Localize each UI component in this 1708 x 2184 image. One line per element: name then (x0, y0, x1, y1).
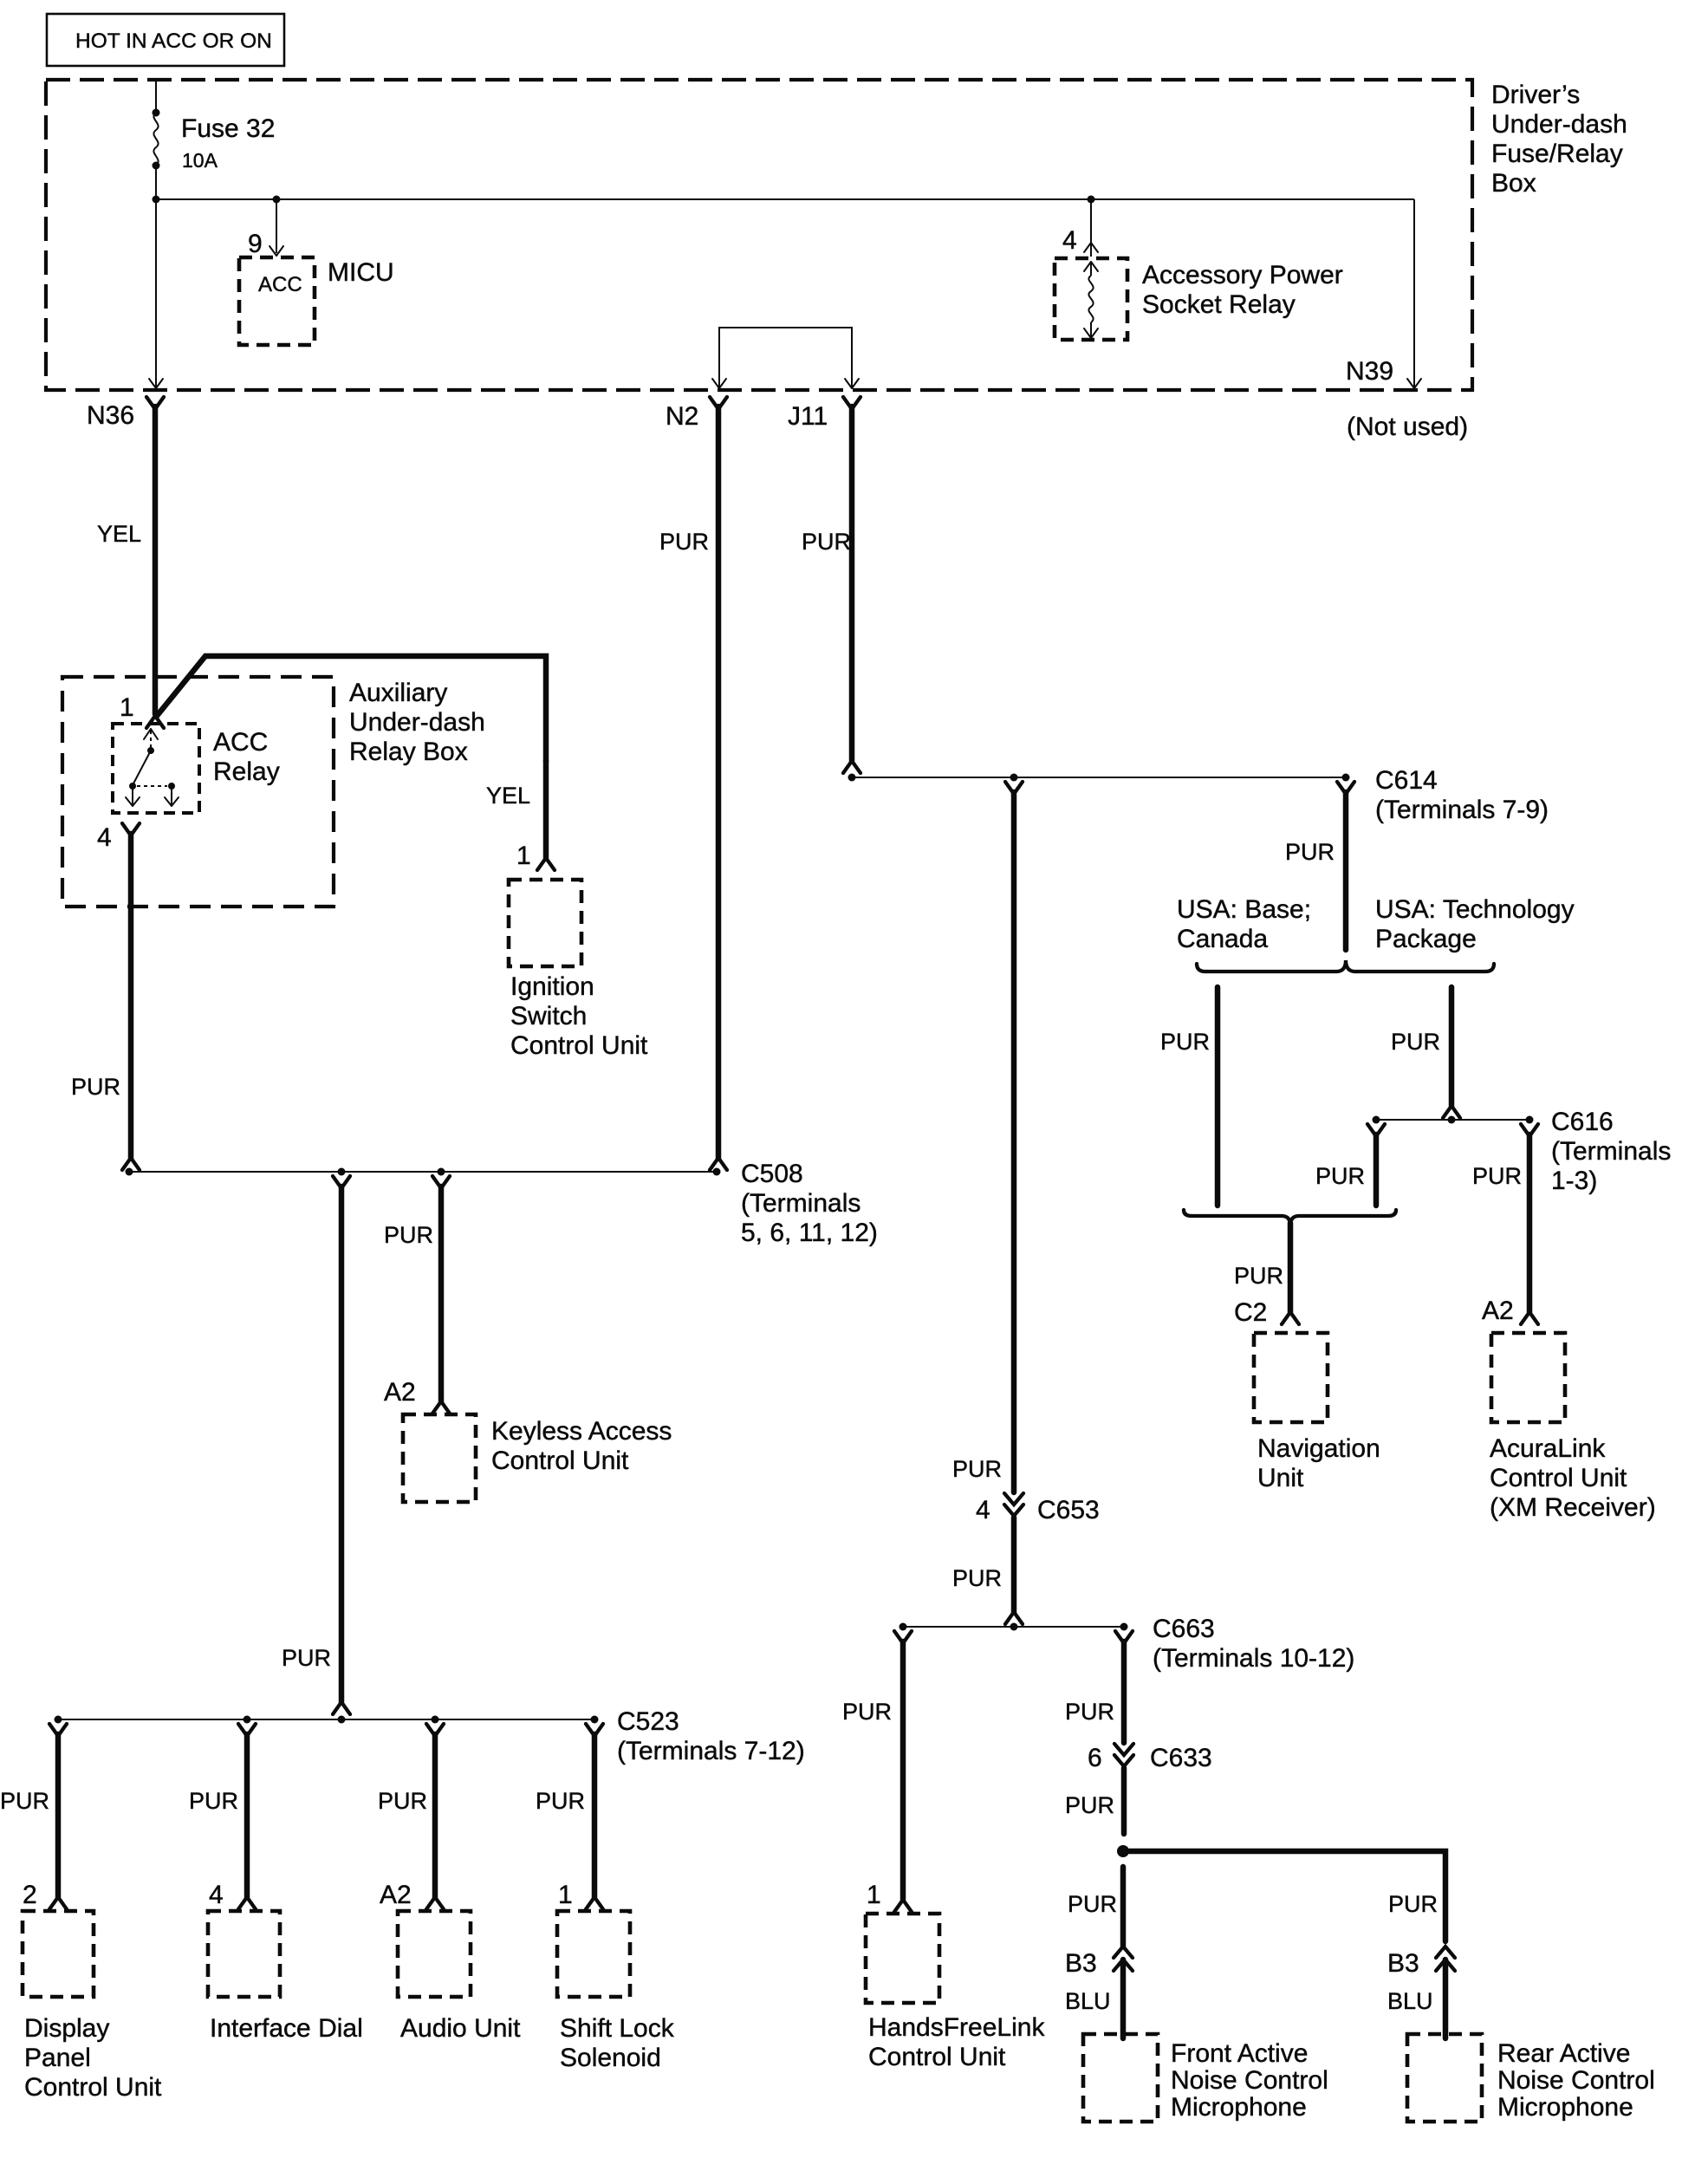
svg-text:Microphone: Microphone (1171, 2093, 1307, 2122)
svg-text:Under-dash: Under-dash (1491, 110, 1627, 139)
svg-text:Control Unit: Control Unit (868, 2043, 1006, 2071)
svg-text:PUR: PUR (1068, 1891, 1117, 1917)
svg-text:1: 1 (558, 1881, 573, 1909)
svg-text:(Terminals: (Terminals (1551, 1137, 1671, 1166)
svg-text:C633: C633 (1150, 1744, 1212, 1772)
svg-text:Ignition: Ignition (510, 972, 594, 1001)
svg-text:4: 4 (209, 1881, 224, 1909)
svg-text:PUR: PUR (189, 1788, 238, 1814)
svg-text:Control Unit: Control Unit (1490, 1464, 1627, 1492)
svg-text:10A: 10A (182, 149, 218, 172)
svg-text:USA: Technology: USA: Technology (1375, 895, 1575, 924)
svg-text:C508: C508 (741, 1160, 803, 1188)
svg-text:PUR: PUR (71, 1074, 120, 1100)
svg-text:Canada: Canada (1177, 925, 1268, 953)
svg-text:PUR: PUR (1391, 1029, 1440, 1055)
svg-text:C663: C663 (1153, 1615, 1215, 1643)
svg-text:Navigation: Navigation (1257, 1434, 1380, 1463)
svg-text:BLU: BLU (1065, 1988, 1111, 2014)
svg-text:Relay: Relay (213, 757, 280, 786)
svg-text:Audio Unit: Audio Unit (400, 2014, 521, 2043)
svg-text:HOT IN ACC OR ON: HOT IN ACC OR ON (75, 29, 272, 53)
svg-text:PUR: PUR (659, 529, 709, 555)
svg-text:Panel: Panel (24, 2044, 91, 2072)
svg-text:Accessory Power: Accessory Power (1142, 261, 1343, 289)
svg-text:(Terminals 7-9): (Terminals 7-9) (1375, 796, 1549, 824)
svg-text:BLU: BLU (1387, 1988, 1433, 2014)
svg-text:YEL: YEL (486, 783, 530, 809)
svg-text:Rear Active: Rear Active (1497, 2039, 1630, 2068)
svg-text:PUR: PUR (1160, 1029, 1210, 1055)
svg-text:9: 9 (248, 230, 263, 258)
svg-text:1: 1 (120, 693, 134, 722)
svg-text:Control Unit: Control Unit (510, 1031, 648, 1060)
svg-text:6: 6 (1088, 1744, 1102, 1772)
svg-text:PUR: PUR (1472, 1163, 1522, 1189)
svg-text:C523: C523 (617, 1707, 679, 1736)
svg-text:PUR: PUR (1065, 1792, 1114, 1818)
svg-text:AcuraLink: AcuraLink (1490, 1434, 1606, 1463)
svg-text:A2: A2 (1482, 1297, 1514, 1325)
svg-text:5, 6, 11, 12): 5, 6, 11, 12) (741, 1219, 878, 1247)
svg-text:Switch: Switch (510, 1002, 587, 1030)
svg-text:Microphone: Microphone (1497, 2093, 1633, 2122)
svg-text:N39: N39 (1346, 357, 1393, 386)
svg-text:HandsFreeLink: HandsFreeLink (868, 2013, 1045, 2042)
svg-text:PUR: PUR (1285, 839, 1335, 865)
svg-text:A2: A2 (384, 1378, 416, 1407)
svg-text:B3: B3 (1065, 1949, 1097, 1978)
svg-text:Fuse/Relay: Fuse/Relay (1491, 140, 1623, 168)
svg-text:Under-dash: Under-dash (349, 708, 485, 737)
svg-text:C616: C616 (1551, 1108, 1614, 1136)
svg-text:A2: A2 (380, 1881, 412, 1909)
svg-text:(Terminals: (Terminals (741, 1189, 860, 1218)
svg-text:Control Unit: Control Unit (491, 1446, 629, 1475)
svg-text:MICU: MICU (328, 258, 394, 287)
svg-text:1-3): 1-3) (1551, 1167, 1597, 1195)
svg-text:N36: N36 (87, 401, 134, 430)
svg-text:PUR: PUR (952, 1565, 1002, 1591)
svg-text:Box: Box (1491, 169, 1536, 198)
svg-text:Keyless Access: Keyless Access (491, 1417, 672, 1446)
svg-text:PUR: PUR (842, 1699, 892, 1725)
svg-text:4: 4 (1062, 226, 1077, 255)
svg-text:PUR: PUR (536, 1788, 585, 1814)
svg-text:Control Unit: Control Unit (24, 2073, 162, 2102)
svg-text:PUR: PUR (802, 529, 851, 555)
svg-text:PUR: PUR (282, 1645, 331, 1671)
svg-text:Noise Control: Noise Control (1171, 2066, 1328, 2095)
svg-text:PUR: PUR (952, 1456, 1002, 1482)
svg-text:ACC: ACC (213, 728, 268, 757)
svg-text:1: 1 (516, 842, 531, 870)
svg-text:(XM Receiver): (XM Receiver) (1490, 1493, 1656, 1522)
svg-text:Solenoid: Solenoid (560, 2044, 661, 2072)
svg-text:PUR: PUR (384, 1222, 433, 1248)
svg-text:PUR: PUR (1234, 1263, 1283, 1289)
svg-text:Unit: Unit (1257, 1464, 1304, 1492)
svg-text:(Terminals 10-12): (Terminals 10-12) (1153, 1644, 1354, 1673)
svg-text:C653: C653 (1037, 1496, 1100, 1524)
svg-text:C2: C2 (1234, 1298, 1267, 1327)
svg-text:Display: Display (24, 2014, 109, 2043)
svg-text:Driver’s: Driver’s (1491, 81, 1580, 109)
svg-text:(Not used): (Not used) (1347, 413, 1468, 441)
svg-text:Fuse 32: Fuse 32 (181, 114, 275, 143)
svg-text:ACC: ACC (258, 273, 302, 296)
svg-text:N2: N2 (666, 402, 698, 431)
svg-text:Relay Box: Relay Box (349, 738, 468, 766)
svg-text:(Terminals 7-12): (Terminals 7-12) (617, 1737, 805, 1765)
svg-text:PUR: PUR (378, 1788, 427, 1814)
svg-text:YEL: YEL (97, 521, 141, 547)
svg-text:Noise Control: Noise Control (1497, 2066, 1655, 2095)
svg-text:Interface Dial: Interface Dial (210, 2014, 363, 2043)
svg-text:Socket Relay: Socket Relay (1142, 290, 1296, 319)
svg-text:4: 4 (97, 823, 112, 852)
svg-text:PUR: PUR (1388, 1891, 1438, 1917)
svg-text:Front Active: Front Active (1171, 2039, 1308, 2068)
svg-text:1: 1 (867, 1881, 881, 1909)
svg-text:Shift Lock: Shift Lock (560, 2014, 675, 2043)
svg-text:PUR: PUR (0, 1788, 49, 1814)
svg-text:Auxiliary: Auxiliary (349, 679, 447, 707)
svg-text:J11: J11 (788, 402, 828, 431)
svg-text:PUR: PUR (1315, 1163, 1365, 1189)
svg-text:2: 2 (23, 1881, 37, 1909)
svg-text:Package: Package (1375, 925, 1477, 953)
svg-text:4: 4 (976, 1496, 990, 1524)
svg-text:B3: B3 (1387, 1949, 1419, 1978)
svg-text:C614: C614 (1375, 766, 1438, 795)
svg-text:USA: Base;: USA: Base; (1177, 895, 1311, 924)
svg-text:PUR: PUR (1065, 1699, 1114, 1725)
